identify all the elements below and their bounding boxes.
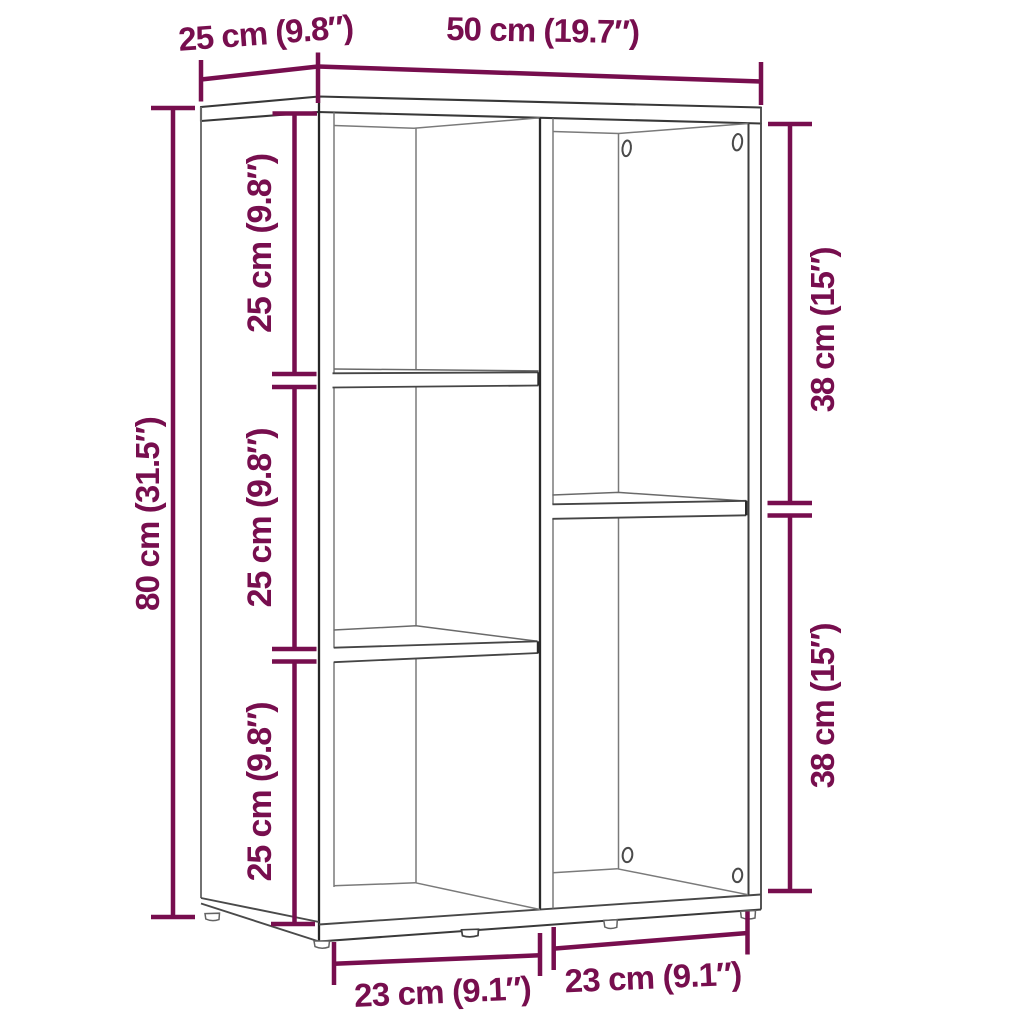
svg-text:38 cm (15″): 38 cm (15″) [804, 624, 841, 789]
svg-text:23 cm (9.1″): 23 cm (9.1″) [353, 969, 531, 1014]
svg-text:38 cm (15″): 38 cm (15″) [804, 248, 841, 413]
svg-text:25 cm (9.8″): 25 cm (9.8″) [241, 429, 279, 608]
svg-text:80 cm (31.5″): 80 cm (31.5″) [129, 417, 166, 611]
svg-text:25 cm (9.8″): 25 cm (9.8″) [241, 703, 279, 882]
svg-text:50 cm (19.7″): 50 cm (19.7″) [446, 10, 640, 50]
svg-text:23 cm (9.1″): 23 cm (9.1″) [564, 955, 742, 1000]
svg-text:25 cm (9.8″): 25 cm (9.8″) [241, 154, 279, 333]
